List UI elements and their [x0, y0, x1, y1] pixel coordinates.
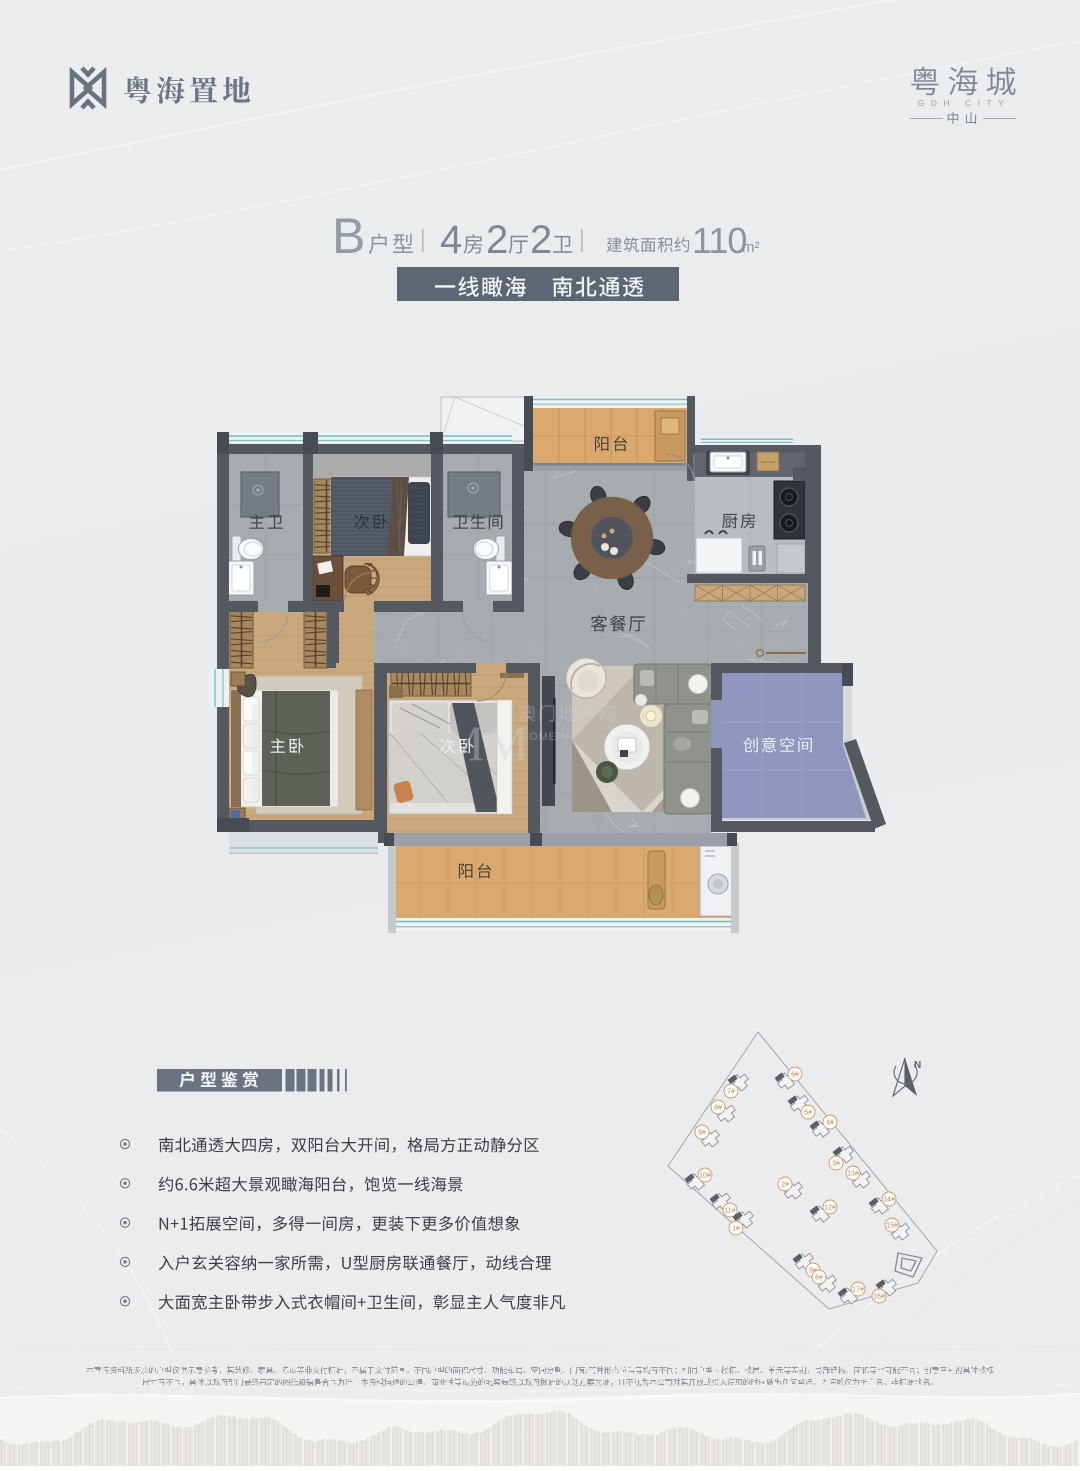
- svg-text:4: 4: [440, 218, 462, 262]
- svg-text:3#: 3#: [832, 1161, 840, 1168]
- svg-text:15#: 15#: [886, 1223, 898, 1230]
- svg-text:m²: m²: [742, 239, 760, 256]
- svg-text:7#: 7#: [727, 1089, 735, 1096]
- svg-text:14#: 14#: [883, 1197, 895, 1204]
- svg-text:2: 2: [530, 218, 552, 262]
- svg-text:5#: 5#: [804, 1110, 812, 1117]
- svg-text:1#: 1#: [732, 1226, 740, 1233]
- svg-text:11#: 11#: [724, 1208, 735, 1215]
- svg-text:2: 2: [486, 218, 508, 262]
- svg-text:17#: 17#: [852, 1287, 864, 1294]
- svg-text:6#: 6#: [791, 1072, 799, 1079]
- svg-text:2#: 2#: [781, 1182, 789, 1189]
- svg-text:9#: 9#: [698, 1130, 706, 1137]
- svg-text:13#: 13#: [847, 1171, 859, 1178]
- svg-text:B: B: [332, 208, 365, 264]
- svg-text:12#: 12#: [824, 1205, 836, 1212]
- svg-text:4#: 4#: [826, 1120, 834, 1127]
- svg-text:10#: 10#: [699, 1173, 711, 1180]
- svg-text:MM: MM: [440, 715, 529, 771]
- svg-text:GDH CITY: GDH CITY: [918, 98, 1011, 108]
- svg-text:8#: 8#: [714, 1105, 722, 1112]
- svg-text:16#: 16#: [873, 1294, 885, 1301]
- svg-text:110: 110: [692, 220, 746, 261]
- svg-text:HOMEIN: HOMEIN: [520, 731, 570, 743]
- svg-text:N: N: [914, 1060, 921, 1071]
- svg-text:8#: 8#: [815, 1275, 823, 1282]
